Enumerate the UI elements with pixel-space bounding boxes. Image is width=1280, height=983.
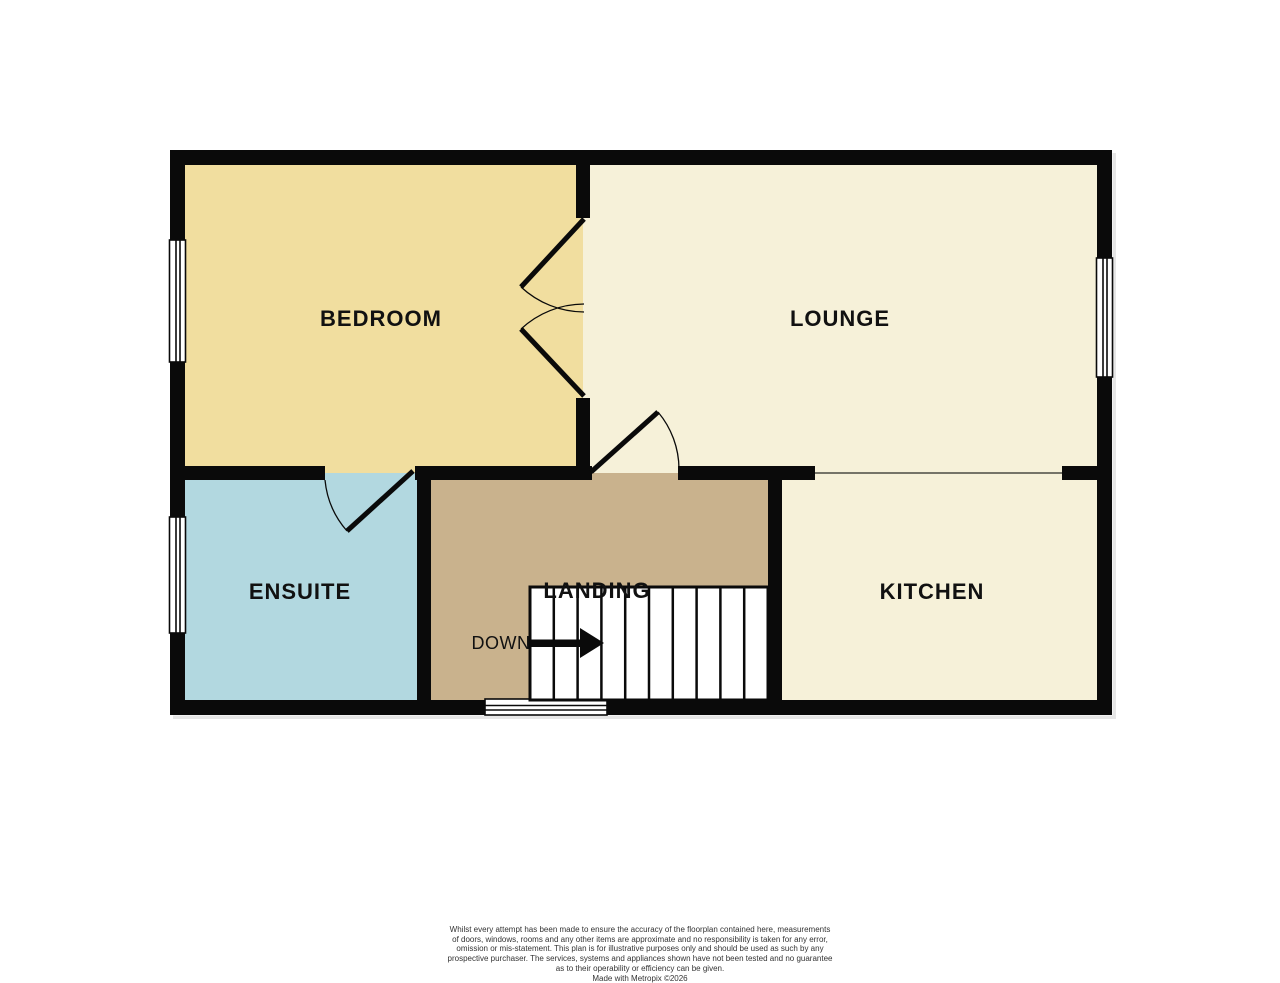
disclaimer-line: prospective purchaser. The services, sys… [0, 954, 1280, 964]
wall-segment [415, 466, 592, 480]
landing-label: LANDING [543, 578, 650, 603]
lounge-label: LOUNGE [790, 306, 890, 331]
bedroom-window [170, 240, 186, 362]
floorplan-drawing: BEDROOM LOUNGE ENSUITE LANDING KITCHEN D… [0, 0, 1280, 983]
disclaimer-line: omission or mis-statement. This plan is … [0, 944, 1280, 954]
down-label: DOWN [472, 633, 531, 653]
kitchen-label: KITCHEN [880, 579, 985, 604]
wall-segment [678, 466, 815, 480]
wall-segment [1097, 150, 1112, 715]
ensuite-label: ENSUITE [249, 579, 351, 604]
bedroom-label: BEDROOM [320, 306, 442, 331]
wall-segment [417, 466, 431, 700]
wall-segment [1062, 466, 1102, 480]
lounge-window [1097, 258, 1113, 377]
ensuite-window [170, 517, 186, 633]
floorplan-page: BEDROOM LOUNGE ENSUITE LANDING KITCHEN D… [0, 0, 1280, 983]
disclaimer-line: Whilst every attempt has been made to en… [0, 925, 1280, 935]
disclaimer-credit: Made with Metropix ©2026 [0, 974, 1280, 983]
wall-segment [180, 466, 325, 480]
disclaimer: Whilst every attempt has been made to en… [0, 925, 1280, 983]
wall-segment [170, 700, 1112, 715]
wall-segment [768, 470, 782, 700]
wall-segment [170, 150, 1112, 165]
disclaimer-line: as to their operability or efficiency ca… [0, 964, 1280, 974]
disclaimer-line: of doors, windows, rooms and any other i… [0, 935, 1280, 945]
wall-segment [576, 160, 590, 218]
